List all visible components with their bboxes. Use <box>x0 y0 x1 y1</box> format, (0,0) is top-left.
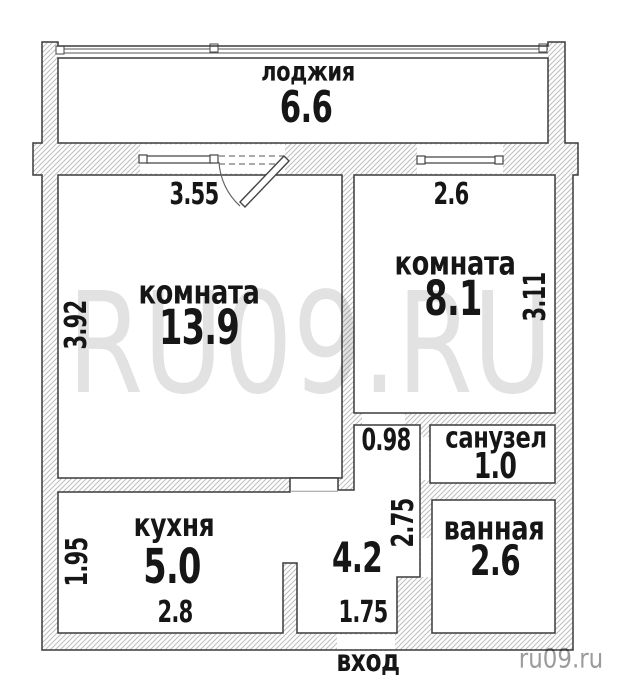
floor-plan-page: RU09.RU ru09.ru лоджия 6.6 комната 13.9 … <box>0 0 620 682</box>
wall-kitchen-stub <box>283 563 297 633</box>
dim-room2-width: 2.6 <box>433 180 468 210</box>
entrance-label: вход <box>336 647 399 677</box>
dim-kitchen-width: 2.8 <box>157 598 192 628</box>
dim-room2-depth: 3.11 <box>521 272 551 321</box>
wall-loggia-right <box>548 42 565 143</box>
dim-kitchen-depth: 1.95 <box>63 537 93 586</box>
room-area-living1: 13.9 <box>159 304 239 352</box>
opening-window1 <box>140 145 218 174</box>
opening-bath-door <box>421 538 431 577</box>
room-area-kitchen: 5.0 <box>143 543 200 591</box>
wall-entrance-right <box>397 577 432 633</box>
dim-hall-length: 2.75 <box>389 498 419 547</box>
wall-right <box>555 175 573 650</box>
room-area-living2: 8.1 <box>424 275 481 323</box>
dim-room1-width: 3.55 <box>169 180 218 210</box>
room-label-kitchen: кухня <box>134 509 215 541</box>
room-area-bath: 2.6 <box>470 540 520 582</box>
dim-hall-opening: 0.98 <box>361 426 410 456</box>
opening-wc-door <box>421 437 429 480</box>
hall-area-label: 4.2 <box>332 537 382 579</box>
watermark-small: ru09.ru <box>519 646 603 673</box>
dim-room1-depth: 3.92 <box>62 300 92 349</box>
wall-left-bulge <box>33 143 42 175</box>
dim-entrance-width: 1.75 <box>338 598 387 628</box>
wall-left <box>42 42 58 650</box>
room-area-loggia: 6.6 <box>280 86 332 130</box>
room-area-wc: 1.0 <box>474 449 517 485</box>
opening-window2 <box>417 145 503 174</box>
wall-bottom <box>42 633 573 650</box>
wall-kitchen-top <box>58 478 290 492</box>
